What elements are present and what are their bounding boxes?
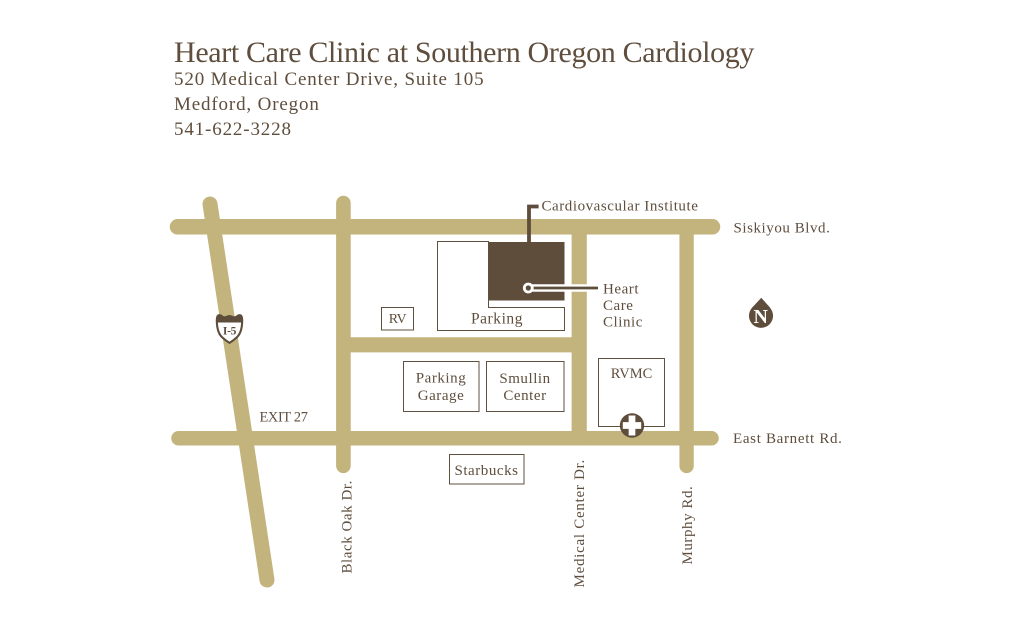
svg-text:Garage: Garage	[418, 388, 465, 404]
svg-text:Care: Care	[603, 298, 634, 314]
svg-text:Heart: Heart	[603, 282, 639, 298]
svg-text:Cardiovascular Institute: Cardiovascular Institute	[542, 199, 699, 215]
svg-text:Siskiyou Blvd.: Siskiyou Blvd.	[734, 221, 831, 237]
svg-text:Black Oak Dr.: Black Oak Dr.	[340, 480, 356, 573]
svg-text:Clinic: Clinic	[603, 315, 643, 331]
svg-text:Parking: Parking	[416, 371, 467, 387]
svg-text:Parking: Parking	[471, 311, 523, 328]
svg-text:EXIT 27: EXIT 27	[260, 410, 308, 426]
svg-text:Medical Center Dr.: Medical Center Dr.	[572, 459, 588, 588]
svg-text:Murphy Rd.: Murphy Rd.	[680, 486, 696, 565]
svg-text:Starbucks: Starbucks	[454, 463, 518, 479]
svg-text:Smullin: Smullin	[499, 371, 550, 387]
svg-text:RVMC: RVMC	[611, 366, 653, 382]
svg-text:Center: Center	[503, 388, 546, 404]
svg-text:I-5: I-5	[223, 325, 237, 337]
svg-text:RV: RV	[389, 312, 407, 327]
svg-text:N: N	[754, 306, 769, 328]
svg-text:East Barnett Rd.: East Barnett Rd.	[733, 431, 843, 447]
